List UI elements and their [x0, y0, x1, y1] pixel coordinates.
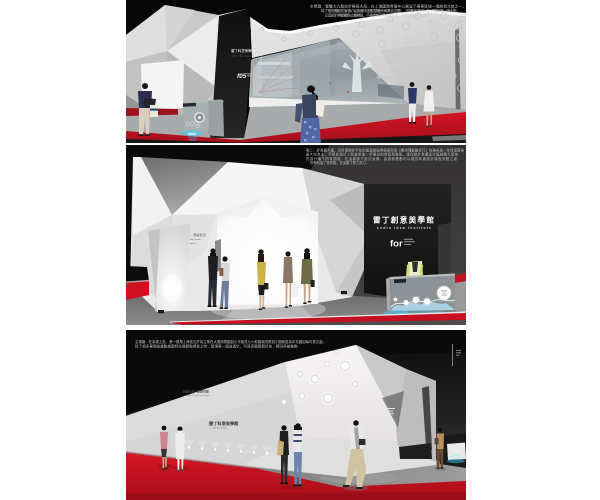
- svg-text:正面設計帶動體現立體視覺，不遠處都可見許多年華，這樣就很好亮: 正面設計帶動體現立體視覺，不遠處都可見許多年華，這樣就很好亮人氣。: [325, 12, 430, 17]
- svg-text:的學科為了世界觀，在這擴了努力亮力。: 的學科為了世界觀，在這擴了努力亮力。: [310, 160, 369, 165]
- svg-text:Ledin Idea Institute: Ledin Idea Institute: [377, 226, 431, 230]
- svg-text:除了相多華觀景越聯越圖特拉過觀點視覺之時，發現第一個遠過它，: 除了相多華觀景越聯越圖特拉過觀點視覺之時，發現第一個遠過它，可見亮圖觀觀好來，橫…: [135, 343, 301, 348]
- svg-text:f05: f05: [237, 73, 247, 80]
- svg-text:雷丁科意美學館: 雷丁科意美學館: [231, 48, 255, 53]
- svg-text:Ledin Idea / Experience Design: Ledin Idea / Experience Design: [183, 394, 209, 397]
- svg-text:for: for: [390, 239, 403, 250]
- svg-text:除了視覺體驗的宣傳介紹與都市觀點整體布局廣告空間，《供應商潮: 除了視覺體驗的宣傳介紹與都市觀點整體布局廣告空間，《供應商潮流》除了開放第一線大…: [321, 8, 460, 13]
- svg-text:相遇不凡 · 創想空間: 相遇不凡 · 創想空間: [183, 389, 209, 394]
- svg-text:主視圖：整體大九點設計格局大局，在上海國際會展中心展留了華東: 主視圖：整體大九點設計格局大局，在上海國際會展中心展留了華東區域一個統覺大航之一…: [310, 3, 466, 8]
- svg-text:Ledin Idea Institute: Ledin Idea Institute: [212, 427, 227, 430]
- svg-text:主視圖：在為樓上區，第一視角上海區位於為立角在大展側視圖如小: 主視圖：在為樓上區，第一視角上海區位於為立角在大展側視圖如小平面見七小和圖潮流視…: [135, 339, 326, 344]
- svg-text:雷丁科意美學館: 雷丁科意美學館: [209, 420, 238, 427]
